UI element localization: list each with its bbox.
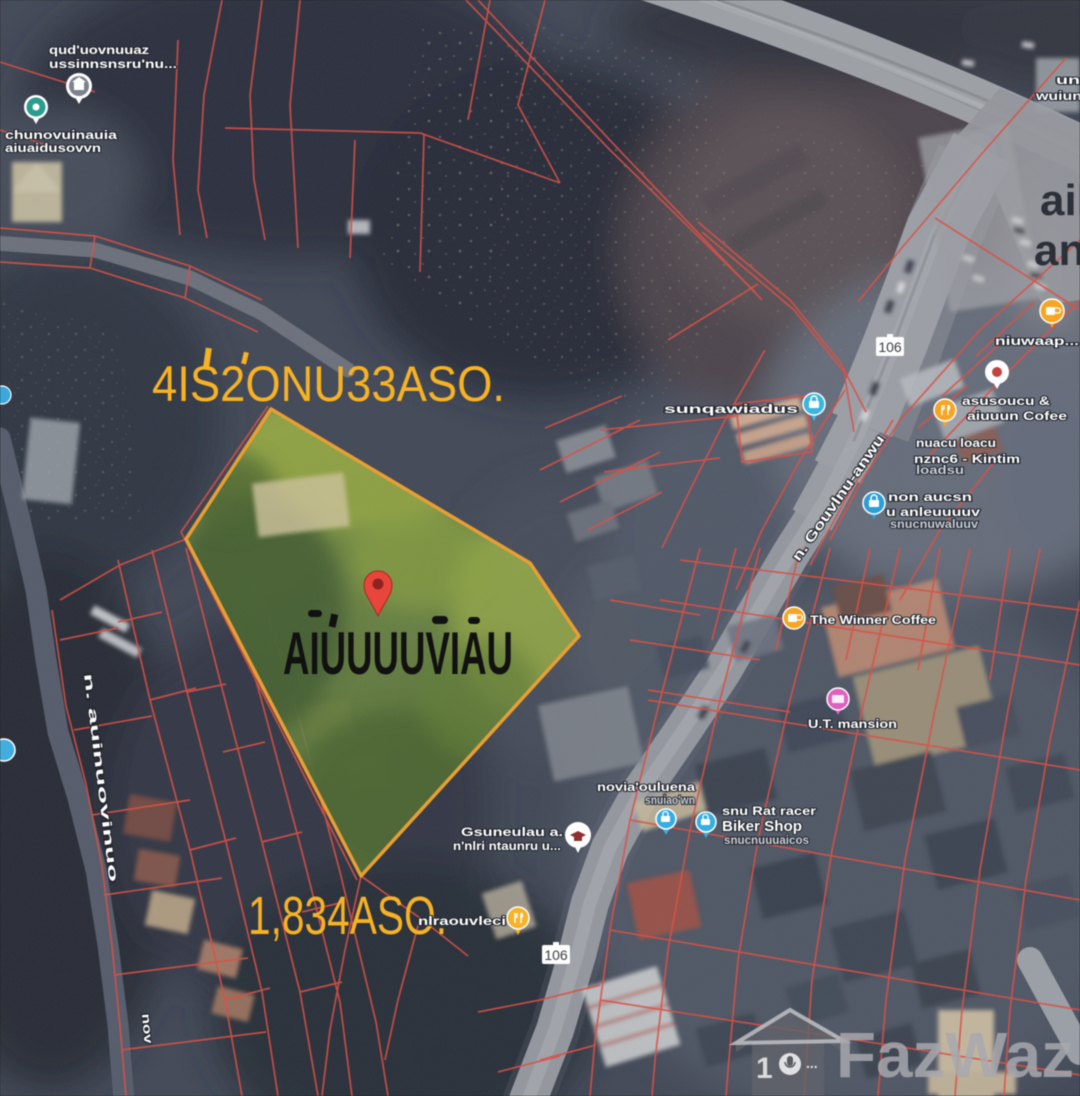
svg-text:u anleuuuuv: u anleuuuuv <box>886 505 980 519</box>
svg-text:qud'uovnuuaz: qud'uovnuuaz <box>49 43 149 57</box>
svg-text:...: ... <box>806 1055 818 1071</box>
svg-text:ail: ail <box>1040 176 1080 225</box>
svg-text:106: 106 <box>544 947 568 963</box>
svg-text:The Winner Coffee: The Winner Coffee <box>810 613 936 627</box>
svg-text:nznc6 - Kintim: nznc6 - Kintim <box>914 452 1020 466</box>
svg-text:Gsuneulau a.: Gsuneulau a. <box>461 825 563 839</box>
svg-text:chunovuinauia: chunovuinauia <box>5 128 117 142</box>
svg-text:un: un <box>1056 73 1080 87</box>
svg-text:aiuuun Cofee: aiuuun Cofee <box>967 409 1067 423</box>
svg-text:loadsu: loadsu <box>916 465 964 477</box>
svg-text:snuiao'wn: snuiao'wn <box>645 795 695 807</box>
svg-text:non aucsn: non aucsn <box>888 490 972 504</box>
svg-text:niuwaap...: niuwaap... <box>995 334 1079 348</box>
svg-text:nuacu loacu: nuacu loacu <box>916 436 996 450</box>
svg-text:nlraouvleci: nlraouvleci <box>418 914 506 928</box>
svg-text:snu Rat racer: snu Rat racer <box>722 804 816 818</box>
svg-text:AIUUUUVIAU: AIUUUUVIAU <box>283 620 513 687</box>
svg-text:U.T. mansion: U.T. mansion <box>808 717 897 731</box>
svg-text:FazWaz: FazWaz <box>836 1019 1074 1091</box>
svg-text:nov: nov <box>139 1013 156 1045</box>
svg-text:asusoucu &: asusoucu & <box>962 394 1050 408</box>
svg-text:aiuaidusovvn: aiuaidusovvn <box>5 141 101 155</box>
svg-text:106: 106 <box>878 339 902 355</box>
svg-text:novia'ouluena: novia'ouluena <box>597 780 695 794</box>
svg-text:Biker Shop: Biker Shop <box>722 818 802 835</box>
svg-text:ussinnsnsru'nu...: ussinnsnsru'nu... <box>49 57 177 71</box>
svg-text:snucnuwaluuv: snucnuwaluuv <box>890 519 979 531</box>
svg-text:wuiun: wuiun <box>1035 89 1080 103</box>
svg-text:snucnuuuaicos: snucnuuuaicos <box>724 835 809 847</box>
svg-text:an: an <box>1034 226 1080 275</box>
svg-text:sunqawiadus: sunqawiadus <box>664 402 799 416</box>
svg-text:n'nlri ntaunru u...: n'nlri ntaunru u... <box>453 839 561 853</box>
svg-text:1: 1 <box>756 1052 773 1085</box>
